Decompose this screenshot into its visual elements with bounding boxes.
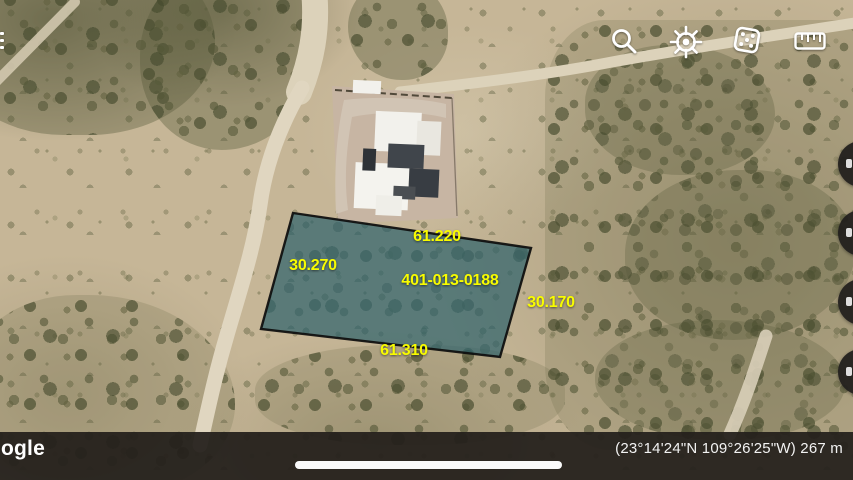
fab-glyph-fragment-icon [846, 297, 852, 306]
google-watermark: ogle [1, 437, 45, 461]
ruler-icon [793, 24, 827, 58]
hamburger-menu-icon[interactable] [0, 32, 4, 53]
search-button[interactable] [606, 23, 642, 59]
voyager-button[interactable] [668, 24, 704, 60]
parcel-id-label: 401-013-0188 [401, 272, 498, 290]
parcel-dim-left: 30.270 [289, 257, 337, 275]
fab-glyph-fragment-icon [846, 159, 852, 168]
fab-glyph-fragment-icon [846, 367, 852, 376]
search-icon [609, 26, 639, 56]
vegetation-patch [595, 320, 845, 440]
measure-button[interactable] [792, 23, 828, 59]
ship-wheel-icon [668, 24, 704, 60]
parcel-dim-bottom: 61.310 [380, 342, 428, 360]
google-earth-screen: 61.220 30.270 401-013-0188 30.170 61.310 [0, 0, 853, 480]
coordinates-readout: (23°14'24"N 109°26'25"W) 267 m [615, 440, 843, 457]
feeling-lucky-button[interactable] [729, 22, 765, 58]
gesture-home-indicator[interactable] [295, 461, 562, 469]
vegetation-patch [255, 345, 565, 445]
dice-icon [730, 23, 764, 57]
parcel-dim-right: 30.170 [527, 294, 575, 312]
parcel-dim-top: 61.220 [413, 228, 461, 246]
fab-glyph-fragment-icon [846, 228, 852, 237]
